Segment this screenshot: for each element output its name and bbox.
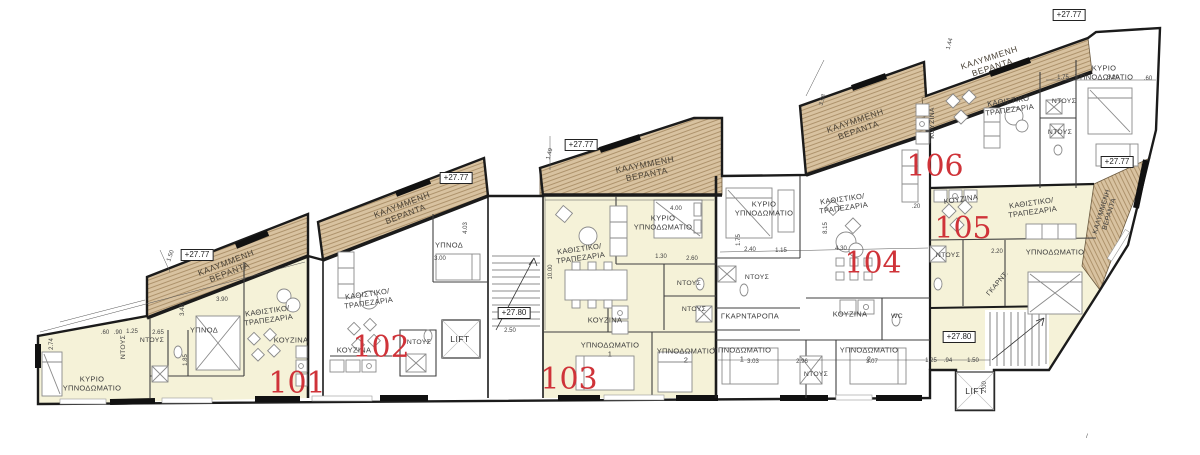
furniture-106	[916, 88, 1138, 166]
furniture-104	[718, 150, 918, 384]
lift-2-shaft	[956, 372, 994, 410]
veranda-103	[540, 118, 722, 195]
staircase-1	[492, 256, 540, 330]
floor-plan-drawing	[0, 0, 1200, 455]
lift-1-shaft	[442, 320, 480, 358]
floor-plan-canvas: ΚΑΛΥΜΜΕΝΗ ΒΕΡΑΝΤΑ +27.77 ΚΑΘΙΣΤΙΚΟ/ ΤΡΑΠ…	[0, 0, 1200, 455]
veranda-102	[318, 158, 488, 260]
